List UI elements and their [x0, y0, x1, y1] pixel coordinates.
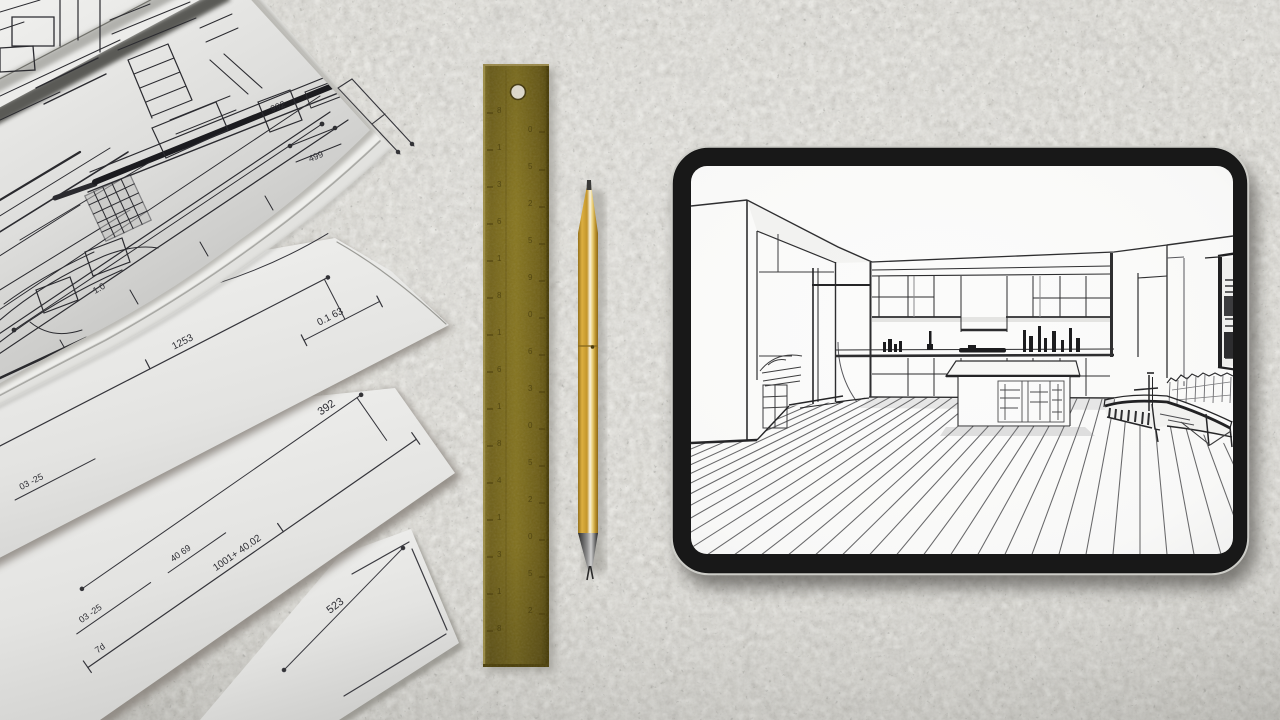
- svg-text:2: 2: [528, 606, 533, 615]
- svg-text:3: 3: [497, 550, 502, 559]
- svg-text:1: 1: [497, 513, 502, 522]
- svg-text:1: 1: [497, 143, 502, 152]
- svg-text:4: 4: [497, 476, 502, 485]
- svg-text:0: 0: [528, 310, 533, 319]
- svg-text:8: 8: [497, 624, 502, 633]
- svg-text:0: 0: [528, 532, 533, 541]
- svg-text:5: 5: [528, 162, 533, 171]
- svg-text:5: 5: [528, 458, 533, 467]
- svg-text:5: 5: [528, 236, 533, 245]
- svg-text:1: 1: [497, 587, 502, 596]
- svg-text:6: 6: [497, 217, 502, 226]
- svg-text:2: 2: [528, 199, 533, 208]
- svg-text:9: 9: [528, 273, 533, 282]
- svg-text:3: 3: [497, 180, 502, 189]
- svg-text:1: 1: [497, 328, 502, 337]
- svg-text:8: 8: [497, 439, 502, 448]
- svg-text:2: 2: [528, 495, 533, 504]
- svg-text:8: 8: [497, 106, 502, 115]
- svg-text:6: 6: [497, 365, 502, 374]
- svg-text:0: 0: [528, 125, 533, 134]
- svg-text:8: 8: [497, 291, 502, 300]
- svg-text:1: 1: [497, 254, 502, 263]
- svg-text:1: 1: [497, 402, 502, 411]
- svg-text:3: 3: [528, 384, 533, 393]
- svg-text:0: 0: [528, 421, 533, 430]
- svg-text:6: 6: [528, 347, 533, 356]
- svg-text:5: 5: [528, 569, 533, 578]
